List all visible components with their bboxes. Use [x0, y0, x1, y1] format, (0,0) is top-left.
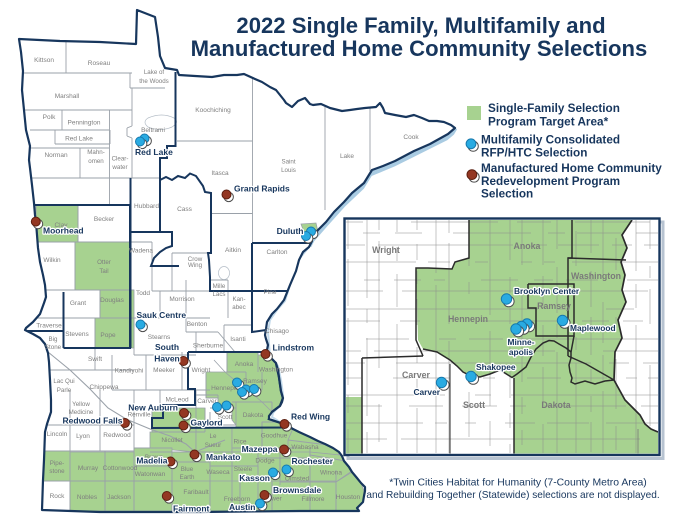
svg-text:Otter: Otter	[97, 259, 111, 266]
svg-text:Austin: Austin	[229, 502, 255, 512]
svg-text:Redwood: Redwood	[103, 432, 131, 439]
svg-text:Washington: Washington	[259, 367, 293, 374]
svg-text:Red Wing: Red Wing	[291, 412, 330, 422]
svg-text:Kasson: Kasson	[239, 473, 270, 483]
svg-text:Duluth: Duluth	[277, 226, 304, 236]
svg-text:Lac Qui: Lac Qui	[53, 378, 74, 385]
svg-text:Wabasha: Wabasha	[291, 444, 319, 451]
svg-text:Aitkin: Aitkin	[225, 247, 241, 254]
svg-text:Itasca: Itasca	[211, 170, 229, 177]
svg-text:Stevens: Stevens	[65, 331, 89, 338]
svg-text:Parle: Parle	[57, 387, 72, 394]
svg-text:Wilkin: Wilkin	[43, 257, 61, 264]
svg-text:South: South	[155, 342, 179, 352]
svg-text:Moorhead: Moorhead	[43, 226, 84, 236]
svg-text:Anoka: Anoka	[235, 361, 254, 368]
svg-text:Kandiyohi: Kandiyohi	[115, 368, 144, 375]
svg-text:Shakopee: Shakopee	[476, 362, 516, 372]
svg-text:Nicollet: Nicollet	[161, 437, 183, 444]
svg-text:Tail: Tail	[99, 268, 108, 275]
svg-text:Renville: Renville	[127, 412, 151, 419]
svg-text:Big: Big	[49, 336, 59, 343]
svg-text:Brownsdale: Brownsdale	[273, 485, 321, 495]
svg-text:Blue: Blue	[181, 466, 194, 473]
svg-text:Redwood Falls: Redwood Falls	[63, 416, 123, 426]
svg-text:*Twin Cities Habitat for Human: *Twin Cities Habitat for Humanity (7-Cou…	[389, 478, 647, 489]
svg-text:Koochiching: Koochiching	[195, 107, 231, 114]
svg-text:Houston: Houston	[336, 494, 361, 501]
svg-text:Hubbard: Hubbard	[134, 203, 159, 210]
svg-text:omen: omen	[88, 158, 104, 165]
svg-text:Murray: Murray	[78, 465, 99, 472]
svg-text:Stone: Stone	[45, 344, 62, 351]
svg-text:Gaylord: Gaylord	[191, 418, 223, 428]
svg-text:Redevelopment Program: Redevelopment Program	[481, 175, 620, 188]
svg-text:Rock: Rock	[50, 493, 66, 500]
svg-text:Fairmont: Fairmont	[173, 504, 210, 514]
svg-text:Chisago: Chisago	[265, 328, 289, 335]
svg-text:Sauk Centre: Sauk Centre	[137, 310, 187, 320]
svg-text:Polk: Polk	[43, 114, 56, 121]
svg-text:Norman: Norman	[44, 152, 68, 159]
svg-text:Winona: Winona	[320, 470, 342, 477]
svg-text:Wright: Wright	[192, 367, 211, 374]
svg-text:Mahn-: Mahn-	[87, 149, 105, 156]
svg-text:Lincoln: Lincoln	[47, 431, 68, 438]
svg-text:Carver: Carver	[402, 370, 430, 380]
svg-text:Todd: Todd	[136, 290, 150, 297]
svg-text:Anoka: Anoka	[514, 241, 541, 251]
svg-text:Red Lake: Red Lake	[135, 147, 173, 157]
svg-text:Hennepin: Hennepin	[448, 314, 488, 324]
svg-text:Ramsey: Ramsey	[537, 301, 571, 311]
svg-text:Dakota: Dakota	[243, 412, 264, 419]
svg-text:RFP/HTC Selection: RFP/HTC Selection	[481, 146, 587, 159]
svg-text:Mankato: Mankato	[206, 452, 240, 462]
svg-text:Kan-: Kan-	[232, 296, 245, 303]
svg-text:Brooklyn Center: Brooklyn Center	[514, 286, 580, 296]
svg-text:Lake of: Lake of	[144, 69, 165, 76]
svg-text:Lake: Lake	[340, 153, 354, 160]
svg-text:Beltrami: Beltrami	[141, 127, 165, 134]
svg-text:Pine: Pine	[263, 289, 276, 296]
svg-text:Pennington: Pennington	[68, 120, 101, 127]
svg-text:Louis: Louis	[281, 167, 296, 174]
svg-text:Minne-: Minne-	[508, 337, 535, 347]
svg-text:Steele: Steele	[234, 466, 253, 473]
svg-text:Yellow: Yellow	[72, 401, 90, 408]
svg-text:Sherburne: Sherburne	[193, 343, 224, 350]
svg-text:Pope: Pope	[100, 332, 116, 339]
svg-text:Cass: Cass	[177, 206, 193, 213]
svg-text:Haven: Haven	[154, 354, 180, 364]
svg-text:and Rebuilding Together (State: and Rebuilding Together (Statewide) sele…	[366, 490, 659, 501]
svg-text:Meeker: Meeker	[153, 367, 176, 374]
svg-text:Multifamily Consolidated: Multifamily Consolidated	[481, 134, 620, 147]
svg-text:Cottonwood: Cottonwood	[103, 465, 138, 472]
svg-text:Faribault: Faribault	[183, 489, 208, 496]
svg-text:Becker: Becker	[94, 216, 115, 223]
svg-text:Mazeppa: Mazeppa	[242, 444, 278, 454]
svg-text:Morrison: Morrison	[169, 296, 195, 303]
svg-text:Nobles: Nobles	[77, 494, 98, 501]
svg-text:Carlton: Carlton	[267, 249, 288, 256]
svg-text:Saint: Saint	[281, 159, 295, 166]
svg-text:Selection: Selection	[481, 188, 533, 201]
svg-text:Wing: Wing	[188, 262, 203, 269]
svg-text:Red Lake: Red Lake	[65, 136, 93, 143]
svg-text:Kittson: Kittson	[34, 57, 54, 64]
svg-text:Wadena: Wadena	[129, 248, 153, 255]
svg-text:Waseca: Waseca	[206, 469, 230, 476]
svg-text:Clear-: Clear-	[112, 156, 129, 163]
svg-text:Madelia: Madelia	[136, 456, 167, 466]
svg-text:Benton: Benton	[187, 321, 208, 328]
svg-text:apolis: apolis	[509, 347, 534, 357]
svg-text:Dakota: Dakota	[541, 400, 570, 410]
svg-text:Watonwan: Watonwan	[135, 471, 166, 478]
svg-text:Marshall: Marshall	[55, 93, 80, 100]
svg-text:Ramsey: Ramsey	[243, 378, 268, 385]
svg-text:Goodhue: Goodhue	[261, 433, 288, 440]
svg-text:Fillmore: Fillmore	[301, 496, 324, 503]
svg-text:abec: abec	[232, 304, 245, 311]
svg-text:Scott: Scott	[463, 400, 485, 410]
svg-text:Single-Family Selection: Single-Family Selection	[488, 102, 620, 115]
svg-text:Pipe-: Pipe-	[50, 460, 64, 467]
svg-text:Stearns: Stearns	[148, 334, 171, 341]
svg-text:stone: stone	[49, 468, 65, 475]
svg-text:Grant: Grant	[70, 300, 86, 307]
svg-text:Chippewa: Chippewa	[90, 384, 119, 391]
svg-text:Jackson: Jackson	[107, 494, 131, 501]
svg-text:Sueur: Sueur	[205, 442, 222, 449]
svg-text:Lindstrom: Lindstrom	[273, 343, 315, 353]
svg-text:Cook: Cook	[403, 134, 419, 141]
svg-text:New Auburn: New Auburn	[128, 403, 178, 413]
svg-text:Roseau: Roseau	[88, 60, 111, 67]
svg-text:water: water	[111, 164, 127, 171]
svg-text:Lyon: Lyon	[76, 433, 90, 440]
svg-text:Le: Le	[210, 433, 217, 440]
svg-text:Grand Rapids: Grand Rapids	[234, 184, 290, 194]
svg-text:the Woods: the Woods	[139, 78, 168, 85]
svg-text:Douglas: Douglas	[100, 297, 125, 304]
svg-text:Manufactured Home Community: Manufactured Home Community	[481, 162, 662, 175]
svg-text:Mille: Mille	[213, 283, 226, 290]
svg-text:Swift: Swift	[88, 356, 102, 363]
svg-text:2022 Single Family, Multifamil: 2022 Single Family, Multifamily and	[236, 13, 605, 38]
svg-text:Earth: Earth	[180, 474, 195, 481]
svg-text:Isanti: Isanti	[230, 336, 246, 343]
svg-text:Lacs: Lacs	[212, 291, 225, 298]
svg-text:Program Target Area*: Program Target Area*	[488, 115, 609, 128]
svg-text:Traverse: Traverse	[36, 323, 62, 330]
svg-text:Manufactured Home Community Se: Manufactured Home Community Selections	[191, 36, 648, 61]
svg-text:Rochester: Rochester	[292, 456, 334, 466]
svg-text:Maplewood: Maplewood	[570, 323, 616, 333]
svg-text:Carver: Carver	[413, 387, 440, 397]
svg-text:Dodge: Dodge	[255, 458, 275, 465]
svg-text:Washington: Washington	[571, 271, 621, 281]
svg-text:Wright: Wright	[372, 245, 400, 255]
